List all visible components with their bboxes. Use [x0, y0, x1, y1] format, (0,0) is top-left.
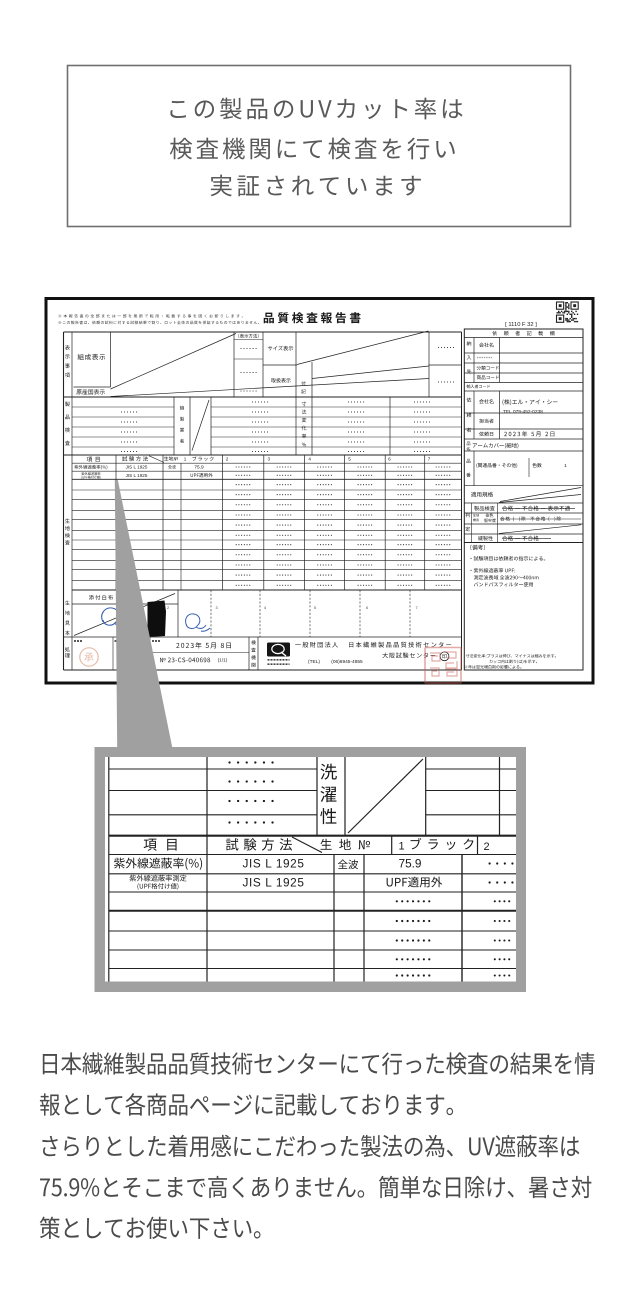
svg-text:(06)6945-4855: (06)6945-4855	[331, 659, 363, 665]
svg-text:5: 5	[348, 457, 351, 462]
svg-text:TEL 079-452-0238: TEL 079-452-0238	[503, 409, 543, 415]
svg-text:JIS L 1925: JIS L 1925	[243, 857, 305, 871]
svg-text:2: 2	[167, 606, 169, 610]
svg-text:5: 5	[314, 606, 316, 610]
svg-text:2: 2	[226, 457, 229, 462]
svg-text:4: 4	[264, 606, 266, 610]
svg-text:JIS L 1925: JIS L 1925	[126, 465, 148, 470]
svg-text:JIS L 1925: JIS L 1925	[126, 473, 148, 478]
svg-text:4: 4	[308, 457, 311, 462]
svg-text:1: 1	[564, 463, 567, 469]
svg-text:(1/1): (1/1)	[218, 658, 228, 663]
svg-text:3: 3	[268, 457, 271, 462]
svg-text:6: 6	[388, 457, 391, 462]
svg-text:1: 1	[398, 841, 404, 853]
svg-text:JIS L 1925: JIS L 1925	[243, 876, 305, 890]
svg-text:(TEL): (TEL)	[308, 659, 320, 665]
svg-text:1: 1	[184, 457, 187, 462]
svg-text:2: 2	[483, 841, 489, 853]
svg-text:3: 3	[215, 606, 217, 610]
svg-text:7: 7	[415, 606, 417, 610]
svg-text:6: 6	[366, 606, 368, 610]
svg-text:75.9: 75.9	[194, 465, 204, 471]
svg-text:75.9: 75.9	[399, 857, 422, 871]
svg-text:[ 1110 F 32 ]: [ 1110 F 32 ]	[505, 322, 537, 328]
svg-text:7: 7	[428, 457, 431, 462]
